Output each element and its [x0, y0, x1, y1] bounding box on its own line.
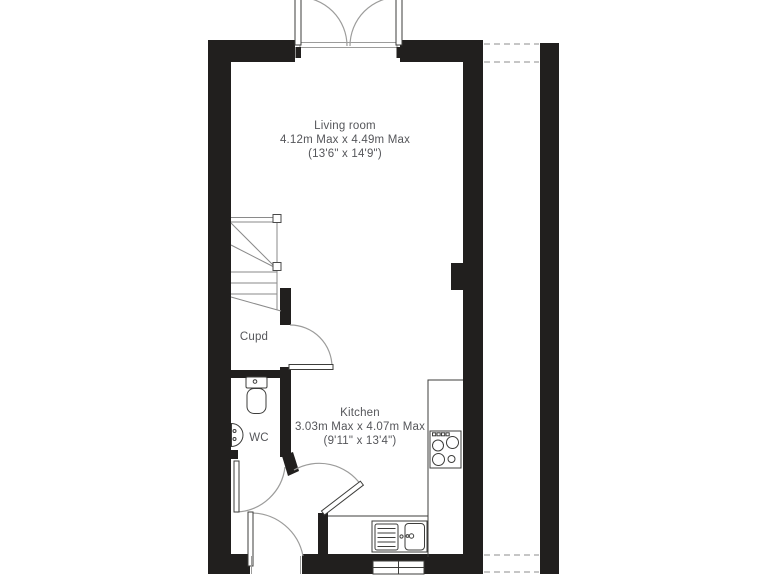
door-arc [350, 0, 399, 46]
wc-label: WC [245, 431, 273, 445]
basin-tap [233, 430, 236, 433]
wall-hall-jamb [318, 513, 328, 555]
door-leaf [396, 0, 402, 45]
stair-newel-post [273, 215, 281, 223]
floorplan-drawing [0, 0, 768, 576]
sink-tap [406, 535, 409, 538]
room-dims-metric: 4.12m Max x 4.49m Max [245, 133, 445, 147]
wall-bottom-mid [302, 554, 373, 574]
door-leaf [295, 0, 301, 45]
hob-burner [448, 456, 455, 463]
window [373, 561, 424, 574]
door-leaf [289, 365, 333, 370]
wall-outer-right [540, 43, 559, 574]
hob-burner [433, 454, 445, 466]
front-door [248, 512, 303, 574]
room-name: Kitchen [260, 406, 460, 420]
basin-icon [232, 424, 244, 447]
cupboard-door [289, 325, 333, 370]
kitchen-door [294, 463, 363, 515]
room-name: WC [245, 431, 273, 445]
stair-winder [231, 245, 274, 267]
door-leaf [321, 481, 363, 515]
door-arc [252, 513, 303, 556]
door-arc [298, 0, 347, 46]
cupboard-label: Cupd [230, 330, 278, 344]
room-dims-imperial: (13'6" x 14'9") [245, 147, 445, 161]
living-room-label: Living room 4.12m Max x 4.49m Max (13'6"… [245, 119, 445, 161]
door-leaf [234, 461, 239, 512]
stair-winder [231, 223, 273, 265]
french-doors [295, 0, 402, 58]
door-arc [294, 463, 361, 485]
sink-tap [409, 534, 413, 538]
wall-bottom-left [208, 554, 250, 574]
wall-window-head [373, 554, 424, 561]
room-name: Cupd [230, 330, 278, 344]
wall-left [208, 40, 231, 574]
french-door-threshold [300, 43, 397, 48]
kitchen-label: Kitchen 3.03m Max x 4.07m Max (9'11" x 1… [260, 406, 460, 448]
floorplan-page: Living room 4.12m Max x 4.49m Max (13'6"… [0, 0, 768, 576]
door-jamb-foot [397, 47, 403, 58]
wall-wc-left-jamb [231, 450, 238, 459]
door-arc [290, 325, 332, 367]
wall-top-left [208, 40, 295, 62]
stair-bottom-edge [231, 297, 281, 311]
wc-door [234, 461, 285, 512]
stairs [231, 215, 281, 312]
toilet-button [253, 380, 257, 384]
room-dims-imperial: (9'11" x 13'4") [260, 434, 460, 448]
dashed-passage [484, 44, 539, 572]
basin-bowl [232, 424, 244, 447]
wall-inner-right [463, 62, 483, 557]
wall-cupboard-jamb-top [280, 288, 291, 325]
door-arc [237, 467, 285, 512]
stair-newel-post [273, 263, 281, 271]
sink-plug [400, 535, 403, 538]
basin-tap [233, 438, 236, 441]
sink-icon [372, 521, 427, 552]
wall-bump [451, 263, 463, 290]
door-leaf [248, 512, 253, 566]
wall-top-right [400, 40, 483, 62]
room-name: Living room [245, 119, 445, 133]
wall-bottom-right [424, 554, 483, 574]
door-jamb-foot [296, 47, 302, 58]
room-dims-metric: 3.03m Max x 4.07m Max [260, 420, 460, 434]
